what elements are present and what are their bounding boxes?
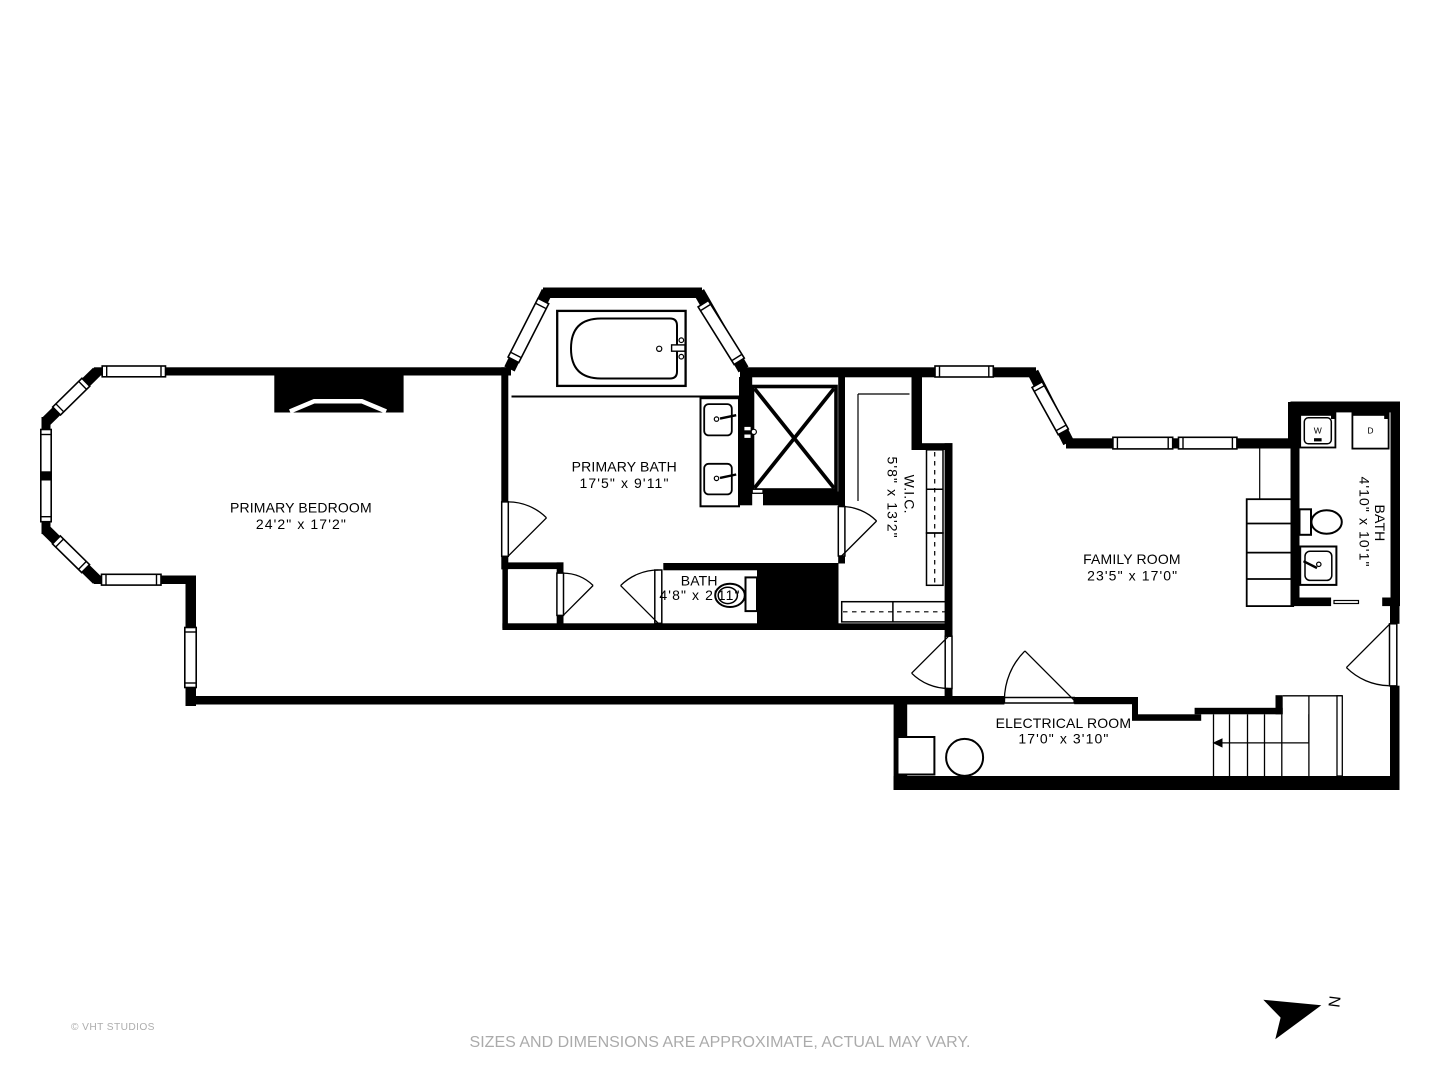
svg-text:W.I.C.: W.I.C. (901, 475, 917, 514)
svg-text:D: D (1367, 426, 1373, 436)
svg-text:5'8" x 13'2": 5'8" x 13'2" (885, 456, 901, 538)
svg-text:4'10" x 10'1": 4'10" x 10'1" (1357, 476, 1373, 567)
svg-text:24'2" x 17'2": 24'2" x 17'2" (256, 516, 347, 532)
svg-text:17'0" x 3'10": 17'0" x 3'10" (1018, 731, 1109, 747)
svg-text:4'8" x 2'11": 4'8" x 2'11" (659, 587, 740, 603)
svg-text:N: N (1324, 995, 1342, 1009)
svg-text:SIZES AND DIMENSIONS ARE APPRO: SIZES AND DIMENSIONS ARE APPROXIMATE, AC… (470, 1034, 971, 1051)
svg-text:PRIMARY BEDROOM: PRIMARY BEDROOM (230, 499, 372, 515)
svg-text:BATH: BATH (1372, 505, 1388, 542)
svg-text:© VHT STUDIOS: © VHT STUDIOS (71, 1022, 155, 1033)
svg-text:W: W (1314, 426, 1322, 436)
svg-text:FAMILY ROOM: FAMILY ROOM (1083, 551, 1181, 567)
svg-text:23'5" x 17'0": 23'5" x 17'0" (1087, 567, 1178, 583)
svg-text:ELECTRICAL ROOM: ELECTRICAL ROOM (996, 715, 1132, 731)
svg-text:17'5" x 9'11": 17'5" x 9'11" (579, 475, 669, 491)
svg-text:PRIMARY BATH: PRIMARY BATH (572, 458, 677, 474)
